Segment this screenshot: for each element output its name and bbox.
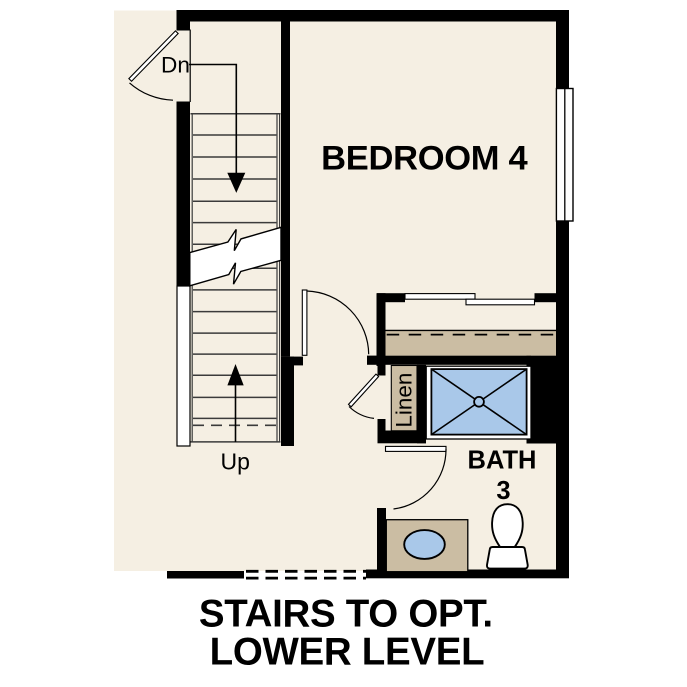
svg-text:STAIRS TO OPT.: STAIRS TO OPT. [199, 593, 493, 636]
svg-text:Up: Up [221, 449, 250, 475]
svg-text:3: 3 [496, 477, 510, 505]
svg-text:BATH: BATH [468, 446, 537, 474]
svg-text:Dn: Dn [161, 53, 190, 78]
svg-text:BEDROOM 4: BEDROOM 4 [321, 139, 527, 177]
svg-text:LOWER LEVEL: LOWER LEVEL [210, 630, 485, 673]
svg-text:Linen: Linen [392, 373, 417, 428]
